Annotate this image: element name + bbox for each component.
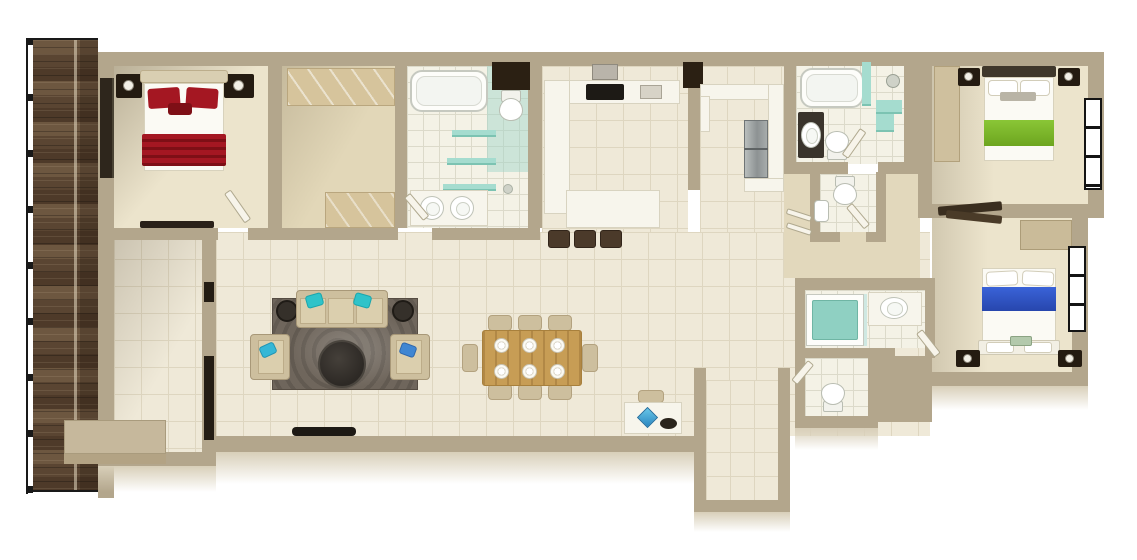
- utility-shelf-left: [700, 96, 710, 132]
- showerroom-sink: [880, 297, 908, 319]
- green-bedroom-window: [1084, 98, 1102, 190]
- bar-stool-2: [574, 230, 596, 248]
- wall-utility-bath2: [784, 60, 796, 168]
- master-dresser: [140, 221, 214, 228]
- bath2-bathtub: [800, 68, 864, 108]
- wall-entry-left: [694, 368, 706, 512]
- master-sink-right: [450, 196, 474, 220]
- blue-bedroom-wardrobe: [1020, 220, 1072, 250]
- blue-pillow-top-right: [1022, 270, 1055, 287]
- sofa-cushion-2: [328, 298, 354, 324]
- bath2-glass-panel: [862, 62, 871, 106]
- wall-living-bottom: [216, 436, 706, 452]
- green-bed-blanket: [984, 120, 1054, 146]
- place-setting-3: [550, 338, 565, 353]
- place-setting-1: [494, 338, 509, 353]
- foyer-floor: [114, 232, 202, 452]
- wall-entry-right: [778, 368, 790, 512]
- face-entry-bottom: [694, 512, 790, 532]
- foyer-bench-platform: [64, 420, 166, 454]
- wc1-toilet: [832, 176, 856, 204]
- wall-wc1-bottom-a: [810, 232, 840, 242]
- cooktop: [586, 84, 624, 100]
- bar-stool-1: [548, 230, 570, 248]
- closet-wardrobe-top: [287, 68, 395, 106]
- face-wc2-bottom: [795, 428, 878, 450]
- entry-floor: [706, 380, 778, 500]
- floor-plan: [0, 0, 1137, 560]
- wall-bath-bottom: [432, 228, 540, 240]
- kitchen-sink: [640, 85, 662, 99]
- blue-lamp-right: [1065, 354, 1074, 363]
- bar-stool-3: [600, 230, 622, 248]
- wc2-toilet: [822, 384, 846, 412]
- wall-bath2-right: [904, 52, 918, 172]
- wall-wc1-right: [876, 172, 886, 240]
- wall-niche-1: [492, 62, 530, 90]
- bath2-corner-shelf-a: [876, 100, 902, 114]
- deck-railing-bottom-rail: [26, 490, 98, 492]
- sliding-partition-panel: [204, 356, 214, 440]
- master-sliding-glass-door: [100, 78, 114, 178]
- shower-drain: [503, 184, 513, 194]
- blue-bed-blanket: [982, 287, 1056, 311]
- place-setting-2: [522, 338, 537, 353]
- green-lamp-right: [1064, 72, 1073, 81]
- side-table-left: [276, 300, 298, 322]
- blue-bedroom-window: [1068, 246, 1086, 332]
- blue-bed-green-runner: [1010, 336, 1032, 346]
- bath2-sink: [801, 122, 821, 148]
- kitchen-island: [566, 190, 660, 228]
- dining-chair-left: [462, 344, 478, 372]
- master-bathtub: [410, 70, 488, 112]
- dining-chair-right: [582, 344, 598, 372]
- master-bed-blanket: [142, 134, 226, 166]
- closet-wardrobe-bottom: [325, 192, 395, 228]
- dining-chair-top-1: [488, 315, 512, 331]
- wall-bedroom-blue-bottom: [920, 372, 1088, 386]
- wall-corner-fill: [878, 356, 932, 422]
- place-setting-5: [522, 364, 537, 379]
- dining-chair-bottom-3: [548, 384, 572, 400]
- green-bedroom-wardrobe: [934, 66, 960, 162]
- master-pillow-center: [168, 103, 192, 115]
- deck-railing-top-rail: [26, 38, 98, 40]
- coffee-table: [318, 340, 366, 388]
- shower-teal-mat: [812, 300, 858, 340]
- wc1-hand-basin: [814, 200, 829, 222]
- wall-bath-kitchen: [528, 66, 542, 228]
- wall-master-bottom-right: [248, 228, 398, 240]
- utility-counter-right: [768, 84, 784, 192]
- tv-console: [292, 427, 356, 436]
- green-bed-headboard: [982, 66, 1056, 77]
- dining-chair-bottom-2: [518, 384, 542, 400]
- dining-chair-top-3: [548, 315, 572, 331]
- foyer-bench-face: [64, 454, 166, 464]
- appliance-door-split: [744, 148, 768, 150]
- glass-shelf-1: [452, 130, 496, 137]
- wall-master-closet: [268, 66, 282, 228]
- master-bed-headboard: [140, 70, 228, 83]
- wall-wc1-bottom-b: [866, 232, 886, 242]
- wall-entry-bottom: [694, 500, 790, 512]
- desk-dark-bowl: [660, 418, 677, 429]
- wall-closet-bath: [395, 66, 407, 228]
- range-hood: [592, 64, 618, 80]
- blue-pillow-top-left: [986, 270, 1019, 287]
- face-bedroom-blue-bottom: [920, 386, 1088, 410]
- master-lamp-left: [123, 80, 134, 91]
- wall-showerroom-top: [795, 278, 935, 290]
- master-lamp-right: [233, 80, 244, 91]
- shower-head: [886, 74, 900, 88]
- deck-railing: [26, 38, 33, 494]
- place-setting-4: [494, 364, 509, 379]
- glass-shelf-2: [447, 158, 496, 165]
- shower-glass-screen: [864, 294, 867, 346]
- wall-wc2-bottom: [795, 416, 878, 428]
- green-lamp-left: [964, 72, 973, 81]
- dining-chair-top-2: [518, 315, 542, 331]
- wall-master-bottom-left: [98, 228, 218, 240]
- sliding-partition-bracket: [204, 282, 214, 302]
- green-accent-pillow: [1000, 92, 1036, 101]
- face-foyer-bottom: [98, 466, 216, 492]
- place-setting-6: [550, 364, 565, 379]
- dining-chair-bottom-1: [488, 384, 512, 400]
- side-table-right: [392, 300, 414, 322]
- wall-bedroom-green-left: [918, 52, 932, 218]
- master-toilet: [498, 90, 522, 120]
- bath2-corner-shelf-b: [876, 114, 894, 132]
- face-living-bottom: [216, 452, 706, 484]
- utility-counter-bottom: [744, 178, 784, 192]
- blue-lamp-left: [963, 354, 972, 363]
